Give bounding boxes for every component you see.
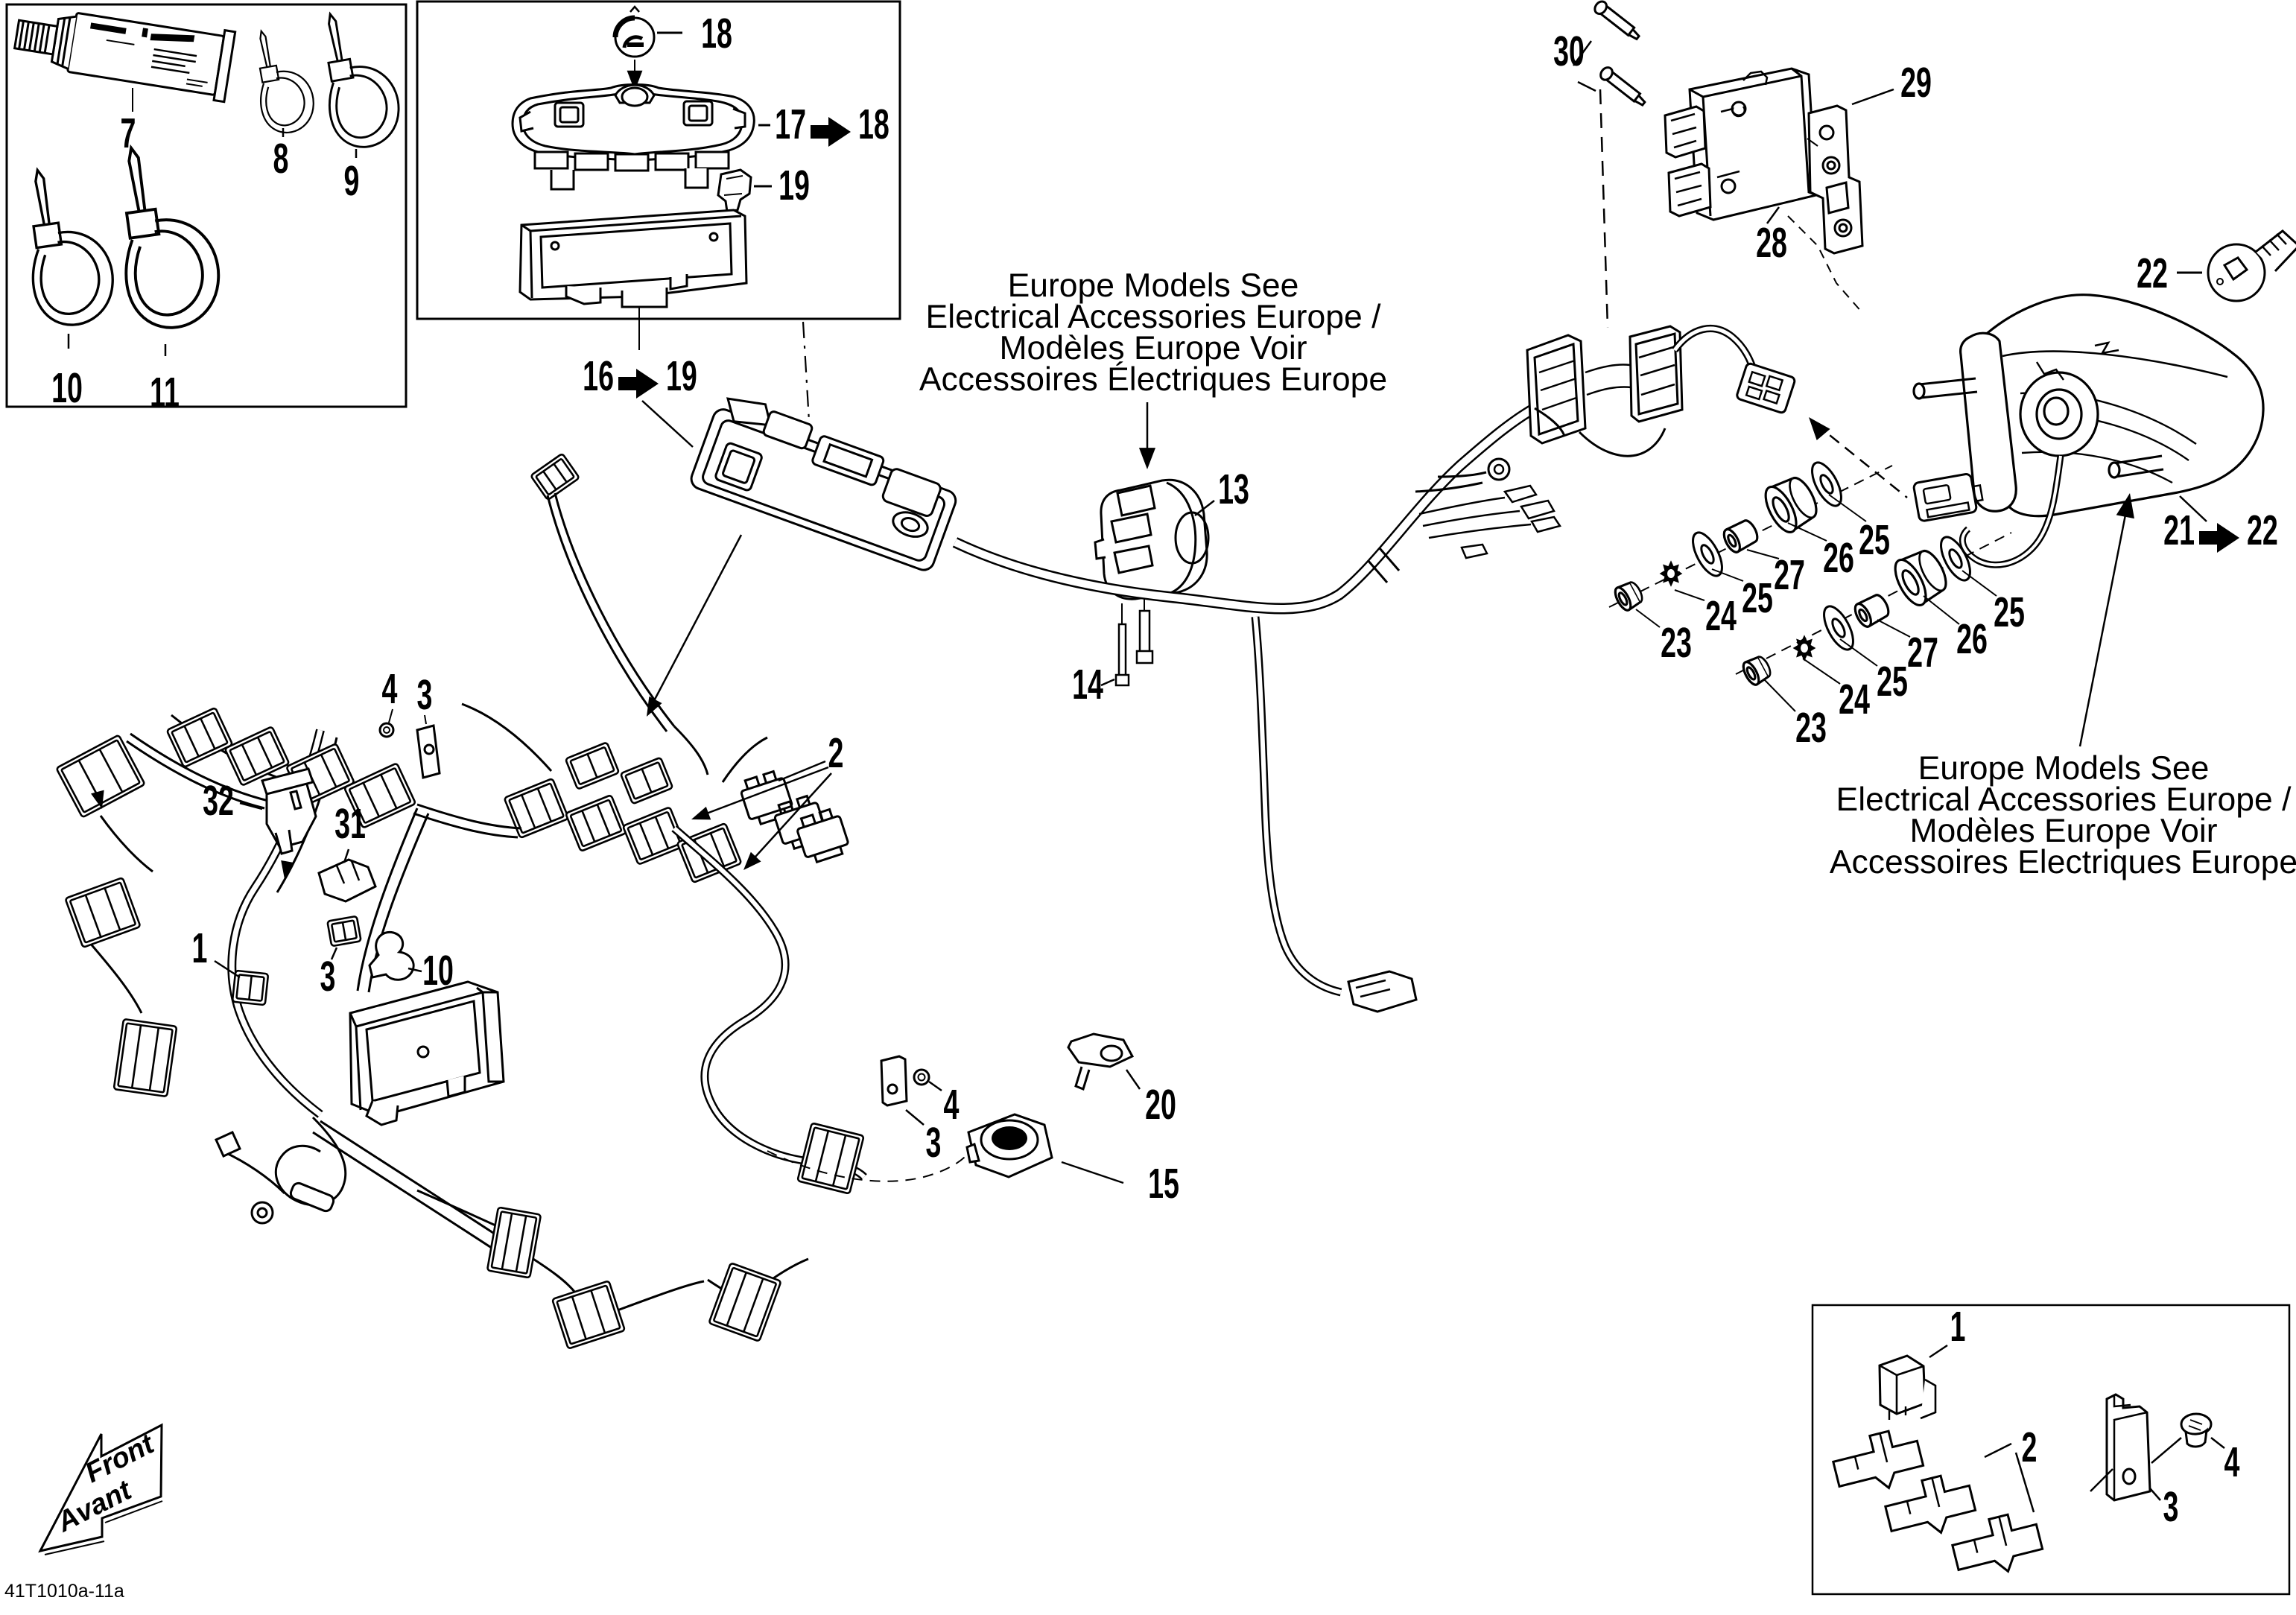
svg-text:20: 20	[1145, 1081, 1176, 1129]
svg-text:18: 18	[701, 10, 732, 57]
svg-text:41T1010a-11a: 41T1010a-11a	[4, 1581, 124, 1602]
svg-text:27: 27	[1907, 629, 1938, 676]
svg-text:19: 19	[778, 162, 810, 209]
svg-text:17: 17	[775, 101, 806, 148]
svg-text:27: 27	[1774, 551, 1805, 599]
svg-text:22: 22	[2247, 507, 2278, 554]
svg-text:31: 31	[334, 800, 366, 848]
svg-text:22: 22	[2137, 250, 2168, 297]
svg-text:2: 2	[828, 729, 844, 777]
svg-text:25: 25	[1742, 574, 1773, 622]
svg-text:28: 28	[1756, 219, 1787, 267]
svg-text:14: 14	[1072, 661, 1103, 708]
svg-text:3: 3	[417, 671, 433, 719]
svg-text:1: 1	[1950, 1303, 1966, 1351]
svg-text:25: 25	[1994, 588, 2025, 636]
svg-text:2: 2	[2022, 1424, 2037, 1471]
svg-text:16: 16	[583, 352, 614, 400]
svg-text:3: 3	[320, 953, 336, 1000]
svg-text:18: 18	[858, 101, 889, 148]
svg-text:24: 24	[1839, 676, 1870, 723]
svg-text:Accessoires Électriques Europe: Accessoires Électriques Europe	[919, 361, 1387, 398]
svg-text:23: 23	[1795, 704, 1827, 752]
svg-text:3: 3	[926, 1119, 942, 1167]
svg-text:13: 13	[1218, 466, 1249, 513]
svg-text:3: 3	[2163, 1483, 2179, 1531]
svg-text:21: 21	[2163, 507, 2195, 554]
svg-text:10: 10	[51, 364, 83, 412]
svg-text:24: 24	[1705, 592, 1737, 640]
svg-text:9: 9	[344, 157, 360, 205]
svg-text:26: 26	[1956, 615, 1988, 663]
svg-text:1: 1	[192, 924, 208, 972]
svg-text:8: 8	[273, 135, 289, 183]
svg-text:30: 30	[1553, 28, 1585, 75]
svg-text:19: 19	[666, 352, 697, 400]
svg-text:4: 4	[382, 665, 398, 713]
svg-text:Accessoires Electriques Europe: Accessoires Electriques Europe	[1830, 844, 2296, 881]
svg-text:4: 4	[944, 1081, 960, 1129]
svg-text:11: 11	[150, 369, 180, 416]
svg-text:26: 26	[1823, 534, 1854, 582]
svg-text:32: 32	[203, 777, 234, 825]
svg-text:25: 25	[1859, 516, 1890, 564]
svg-text:15: 15	[1148, 1160, 1179, 1208]
svg-text:25: 25	[1877, 658, 1908, 705]
svg-text:29: 29	[1900, 59, 1932, 107]
svg-text:4: 4	[2224, 1438, 2240, 1486]
svg-text:23: 23	[1661, 619, 1692, 667]
